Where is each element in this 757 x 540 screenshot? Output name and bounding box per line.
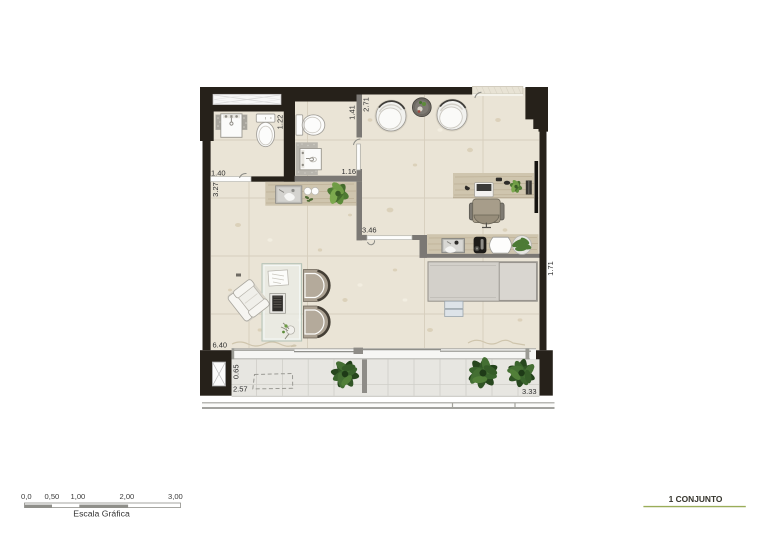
svg-text:1.16: 1.16 xyxy=(342,167,357,176)
svg-text:3,00: 3,00 xyxy=(168,492,183,501)
svg-text:2.71: 2.71 xyxy=(361,97,370,112)
svg-text:0.65: 0.65 xyxy=(231,364,240,379)
svg-text:1,00: 1,00 xyxy=(71,492,86,501)
svg-text:Escala Gráfica: Escala Gráfica xyxy=(73,509,130,519)
svg-text:3.33: 3.33 xyxy=(522,387,537,396)
svg-text:0,50: 0,50 xyxy=(45,492,60,501)
svg-text:3.46: 3.46 xyxy=(362,226,377,235)
svg-text:1.40: 1.40 xyxy=(211,169,226,178)
svg-text:1 CONJUNTO: 1 CONJUNTO xyxy=(669,494,723,504)
svg-text:6.40: 6.40 xyxy=(213,341,228,350)
svg-text:1.71: 1.71 xyxy=(546,261,555,276)
svg-text:1.22: 1.22 xyxy=(275,115,284,130)
svg-text:3.27: 3.27 xyxy=(211,182,220,197)
svg-text:2,00: 2,00 xyxy=(120,492,135,501)
svg-text:1.41: 1.41 xyxy=(347,105,356,120)
svg-text:0,0: 0,0 xyxy=(21,492,32,501)
svg-text:2.57: 2.57 xyxy=(233,385,248,394)
